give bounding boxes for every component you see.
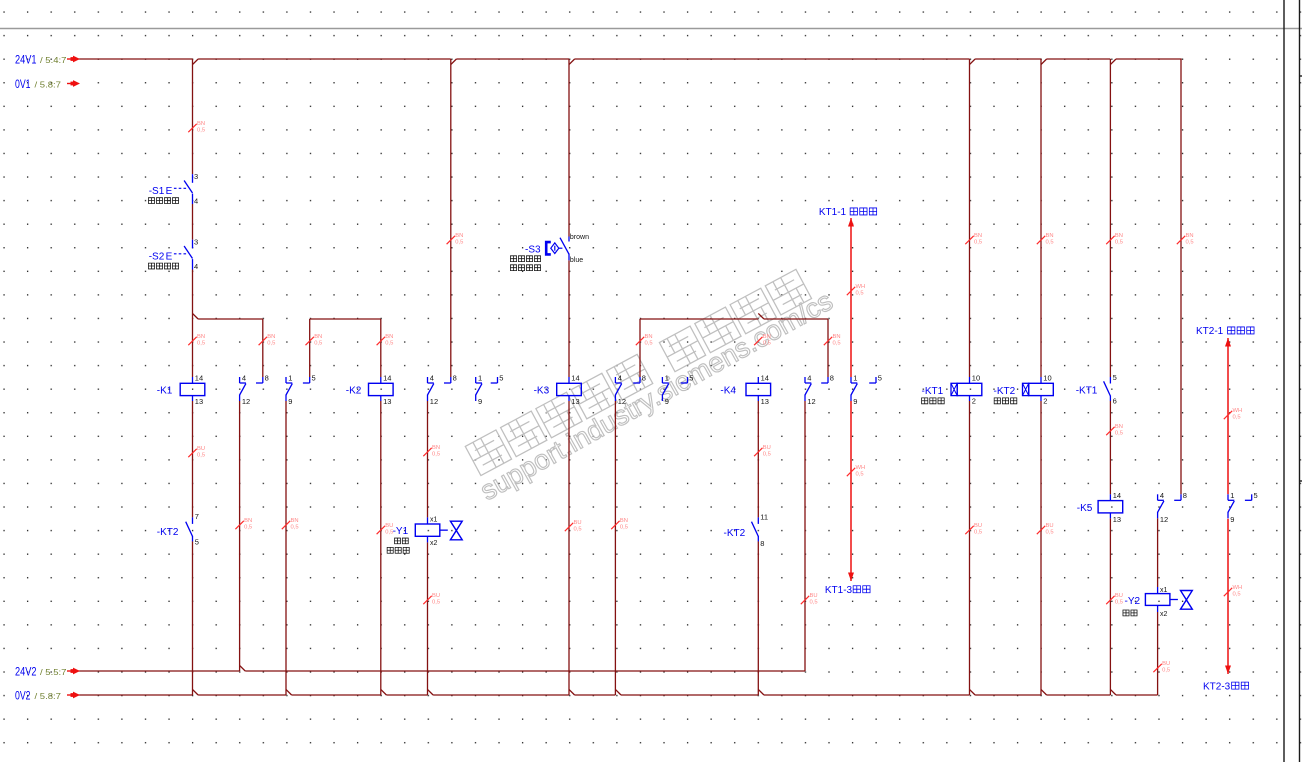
svg-text:0,5: 0,5 bbox=[856, 291, 864, 297]
svg-text:10: 10 bbox=[1043, 374, 1051, 383]
svg-text:13: 13 bbox=[383, 397, 391, 406]
svg-text:/ 5.5:7: / 5.5:7 bbox=[40, 668, 67, 677]
svg-text:BN: BN bbox=[620, 518, 628, 524]
svg-text:12: 12 bbox=[242, 397, 250, 406]
svg-text:BU: BU bbox=[432, 593, 440, 599]
svg-text:0,5: 0,5 bbox=[432, 600, 440, 606]
svg-text:0,5: 0,5 bbox=[1233, 415, 1241, 421]
svg-text:BU: BU bbox=[810, 593, 818, 599]
svg-text:9: 9 bbox=[1230, 515, 1234, 524]
svg-text:BU: BU bbox=[1162, 661, 1170, 667]
svg-text:BN: BN bbox=[1115, 233, 1123, 239]
svg-text:-KT1: -KT1 bbox=[1076, 386, 1098, 397]
svg-text:14: 14 bbox=[383, 374, 391, 383]
svg-text:4: 4 bbox=[242, 374, 246, 383]
svg-text:9: 9 bbox=[288, 397, 292, 406]
svg-text:BU: BU bbox=[763, 445, 771, 451]
svg-text:0,5: 0,5 bbox=[856, 472, 864, 478]
svg-text:5: 5 bbox=[878, 374, 882, 383]
svg-text:WH: WH bbox=[1233, 408, 1243, 414]
svg-text:BN: BN bbox=[1046, 233, 1054, 239]
svg-text:BN: BN bbox=[314, 334, 322, 340]
svg-text:x1: x1 bbox=[1160, 587, 1168, 594]
svg-text:-KT2: -KT2 bbox=[724, 528, 746, 539]
svg-text:14: 14 bbox=[761, 374, 769, 383]
svg-text:14: 14 bbox=[1113, 491, 1121, 500]
svg-text:4: 4 bbox=[194, 262, 198, 271]
svg-text:x1: x1 bbox=[430, 516, 438, 523]
svg-text:0,5: 0,5 bbox=[1186, 240, 1194, 246]
svg-text:KT2-1: KT2-1 bbox=[1196, 326, 1224, 337]
svg-text:brown: brown bbox=[570, 234, 589, 241]
svg-text:-KT2: -KT2 bbox=[157, 527, 179, 538]
svg-text:24V1: 24V1 bbox=[15, 53, 37, 67]
svg-text:0,5: 0,5 bbox=[1233, 592, 1241, 598]
svg-text:BN: BN bbox=[763, 334, 771, 340]
svg-text:-K2: -K2 bbox=[346, 385, 362, 396]
svg-text:4: 4 bbox=[430, 374, 434, 383]
svg-text:BN: BN bbox=[1186, 233, 1194, 239]
svg-text:x2: x2 bbox=[1160, 611, 1168, 618]
svg-text:KT1-3: KT1-3 bbox=[825, 585, 853, 596]
svg-text:0,5: 0,5 bbox=[197, 128, 205, 134]
svg-text:BU: BU bbox=[974, 523, 982, 529]
svg-text:24V2: 24V2 bbox=[15, 665, 37, 679]
svg-text:5: 5 bbox=[1254, 491, 1258, 500]
svg-text:4: 4 bbox=[194, 197, 198, 206]
svg-text:0,5: 0,5 bbox=[620, 525, 628, 531]
svg-text:13: 13 bbox=[1113, 515, 1121, 524]
svg-text:BN: BN bbox=[833, 334, 841, 340]
svg-text:-KT2: -KT2 bbox=[994, 386, 1016, 397]
svg-text:8: 8 bbox=[1183, 491, 1187, 500]
svg-text:0,5: 0,5 bbox=[455, 240, 463, 246]
svg-text:5: 5 bbox=[1113, 373, 1117, 382]
svg-text:0V2: 0V2 bbox=[15, 689, 31, 703]
svg-text:0,5: 0,5 bbox=[385, 341, 393, 347]
svg-text:1: 1 bbox=[288, 374, 292, 383]
svg-text:0,5: 0,5 bbox=[197, 453, 205, 459]
svg-text:0,5: 0,5 bbox=[1046, 530, 1054, 536]
svg-text:12: 12 bbox=[618, 397, 626, 406]
svg-text:blue: blue bbox=[570, 257, 583, 264]
svg-text:4: 4 bbox=[1160, 491, 1164, 500]
svg-text:BN: BN bbox=[197, 121, 205, 127]
svg-text:x2: x2 bbox=[430, 540, 438, 547]
svg-text:11: 11 bbox=[760, 513, 768, 522]
svg-text:/ 5.8:7: / 5.8:7 bbox=[35, 692, 62, 701]
svg-text:13: 13 bbox=[195, 397, 203, 406]
svg-text:/ 5.4:7: / 5.4:7 bbox=[40, 56, 67, 65]
svg-text:0,5: 0,5 bbox=[974, 530, 982, 536]
svg-text:9: 9 bbox=[853, 397, 857, 406]
svg-text:3: 3 bbox=[194, 172, 198, 181]
svg-text:-K3: -K3 bbox=[534, 385, 550, 396]
svg-text:0V1: 0V1 bbox=[15, 77, 31, 91]
svg-text:BN: BN bbox=[432, 445, 440, 451]
svg-text:BN: BN bbox=[267, 334, 275, 340]
svg-text:KT2-3: KT2-3 bbox=[1203, 682, 1231, 693]
svg-text:0,5: 0,5 bbox=[197, 341, 205, 347]
svg-text:0,5: 0,5 bbox=[1046, 240, 1054, 246]
svg-text:BU: BU bbox=[1115, 593, 1123, 599]
svg-text:8: 8 bbox=[830, 374, 834, 383]
svg-text:14: 14 bbox=[195, 374, 203, 383]
svg-text:12: 12 bbox=[807, 397, 815, 406]
svg-text:0,5: 0,5 bbox=[763, 452, 771, 458]
svg-text:0,5: 0,5 bbox=[314, 341, 322, 347]
svg-text:0,5: 0,5 bbox=[810, 600, 818, 606]
svg-text:WH: WH bbox=[1233, 585, 1243, 591]
svg-text:9: 9 bbox=[478, 397, 482, 406]
svg-text:0,5: 0,5 bbox=[1115, 600, 1123, 606]
svg-text:BN: BN bbox=[197, 334, 205, 340]
svg-text:5: 5 bbox=[195, 538, 199, 547]
svg-text:1: 1 bbox=[665, 374, 669, 383]
svg-text:BU: BU bbox=[1046, 523, 1054, 529]
svg-text:-S2: -S2 bbox=[149, 251, 165, 262]
svg-text:3: 3 bbox=[194, 238, 198, 247]
svg-text:-Y2: -Y2 bbox=[1125, 596, 1141, 607]
svg-text:8: 8 bbox=[453, 374, 457, 383]
svg-text:BN: BN bbox=[1115, 424, 1123, 430]
svg-text:-S1: -S1 bbox=[149, 186, 165, 197]
svg-text:KT1-1: KT1-1 bbox=[819, 207, 847, 218]
svg-text:10: 10 bbox=[972, 374, 980, 383]
svg-text:BN: BN bbox=[455, 233, 463, 239]
svg-text:/ 5.8:7: / 5.8:7 bbox=[35, 81, 62, 90]
svg-text:1: 1 bbox=[1230, 491, 1234, 500]
svg-text:0,5: 0,5 bbox=[1115, 240, 1123, 246]
svg-text:-Y1: -Y1 bbox=[393, 526, 409, 537]
svg-text:9: 9 bbox=[665, 397, 669, 406]
svg-text:2: 2 bbox=[972, 397, 976, 406]
svg-text:0,5: 0,5 bbox=[763, 341, 771, 347]
svg-text:12: 12 bbox=[430, 397, 438, 406]
svg-text:7: 7 bbox=[195, 512, 199, 521]
svg-text:WH: WH bbox=[856, 284, 866, 290]
svg-text:0,5: 0,5 bbox=[1162, 668, 1170, 674]
svg-text:8: 8 bbox=[265, 374, 269, 383]
svg-text:8: 8 bbox=[760, 539, 764, 548]
svg-text:-K5: -K5 bbox=[1077, 503, 1093, 514]
svg-text:0,5: 0,5 bbox=[574, 527, 582, 533]
svg-text:BN: BN bbox=[291, 518, 299, 524]
svg-text:4: 4 bbox=[807, 374, 811, 383]
svg-text:E: E bbox=[166, 251, 173, 262]
svg-text:BU: BU bbox=[574, 520, 582, 526]
svg-text:0,5: 0,5 bbox=[645, 341, 653, 347]
svg-text:5: 5 bbox=[689, 374, 693, 383]
svg-text:14: 14 bbox=[571, 374, 579, 383]
svg-text:0,5: 0,5 bbox=[432, 452, 440, 458]
svg-text:8: 8 bbox=[642, 374, 646, 383]
svg-text:0,5: 0,5 bbox=[833, 341, 841, 347]
svg-text:12: 12 bbox=[1160, 515, 1168, 524]
svg-text:-K4: -K4 bbox=[720, 385, 736, 396]
svg-text:E: E bbox=[166, 186, 173, 197]
svg-text:BN: BN bbox=[385, 334, 393, 340]
svg-text:0,5: 0,5 bbox=[1115, 431, 1123, 437]
svg-text:2: 2 bbox=[1043, 397, 1047, 406]
svg-text:4: 4 bbox=[618, 374, 622, 383]
svg-text:0,5: 0,5 bbox=[974, 240, 982, 246]
svg-text:0,5: 0,5 bbox=[267, 341, 275, 347]
svg-text:5: 5 bbox=[499, 374, 503, 383]
svg-text:-KT1: -KT1 bbox=[922, 386, 944, 397]
svg-text:1: 1 bbox=[853, 374, 857, 383]
svg-text:6: 6 bbox=[1113, 397, 1117, 406]
svg-text:WH: WH bbox=[856, 465, 866, 471]
svg-text:-K1: -K1 bbox=[157, 385, 173, 396]
svg-text:13: 13 bbox=[761, 397, 769, 406]
svg-text:BN: BN bbox=[974, 233, 982, 239]
svg-text:BN: BN bbox=[244, 518, 252, 524]
svg-text:13: 13 bbox=[571, 397, 579, 406]
svg-text:0,5: 0,5 bbox=[291, 525, 299, 531]
svg-text:-S3: -S3 bbox=[525, 244, 541, 255]
svg-text:5: 5 bbox=[312, 374, 316, 383]
svg-text:0,5: 0,5 bbox=[244, 525, 252, 531]
svg-text:BU: BU bbox=[197, 446, 205, 452]
svg-text:BN: BN bbox=[645, 334, 653, 340]
svg-text:1: 1 bbox=[478, 374, 482, 383]
